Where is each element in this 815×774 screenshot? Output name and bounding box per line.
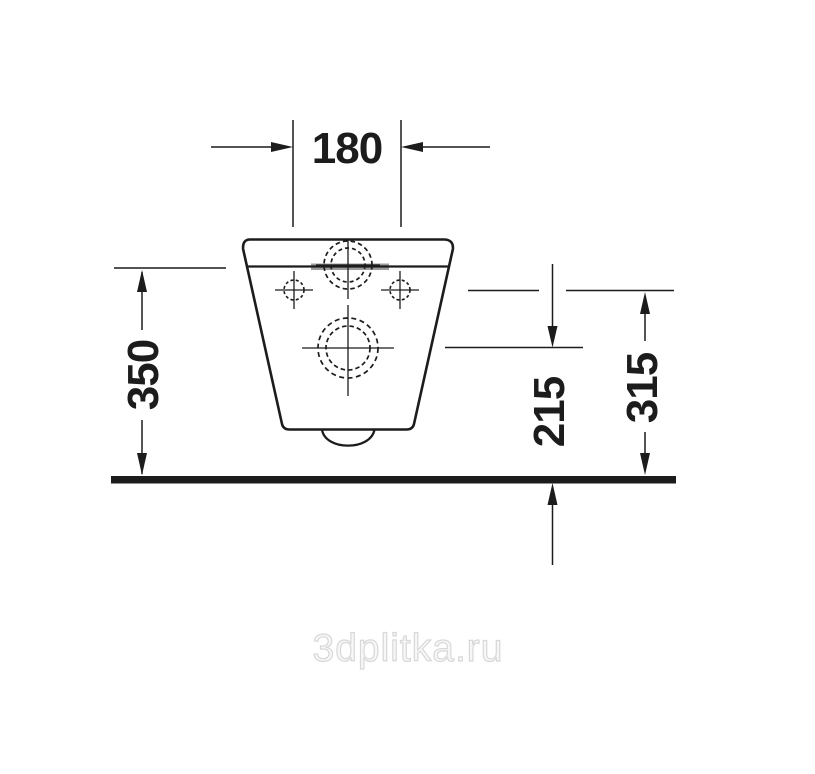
- technical-drawing-canvas: 180: [0, 0, 815, 774]
- dim-215-arrow-down-icon: [548, 326, 558, 348]
- dim-350-arrow-up-icon: [137, 270, 147, 292]
- watermark-text: 3dplitka.ru: [313, 627, 504, 671]
- dim-180-arrow-left-icon: [271, 142, 293, 152]
- dimension-label-outlet-height: 215: [525, 376, 574, 447]
- dimension-label-left-height: 350: [119, 340, 168, 410]
- dim-180-arrow-right-icon: [401, 142, 423, 152]
- dimension-label-top-width: 180: [312, 124, 382, 173]
- dim-315-arrow-down-icon: [640, 453, 650, 475]
- dim-350-arrow-down-icon: [137, 453, 147, 475]
- dimension-label-hole-height: 315: [618, 352, 667, 423]
- drain-bump: [322, 430, 375, 446]
- dim-315-arrow-up-icon: [640, 292, 650, 314]
- floor-line: [111, 476, 676, 484]
- dim-215-arrow-up-icon: [548, 483, 558, 505]
